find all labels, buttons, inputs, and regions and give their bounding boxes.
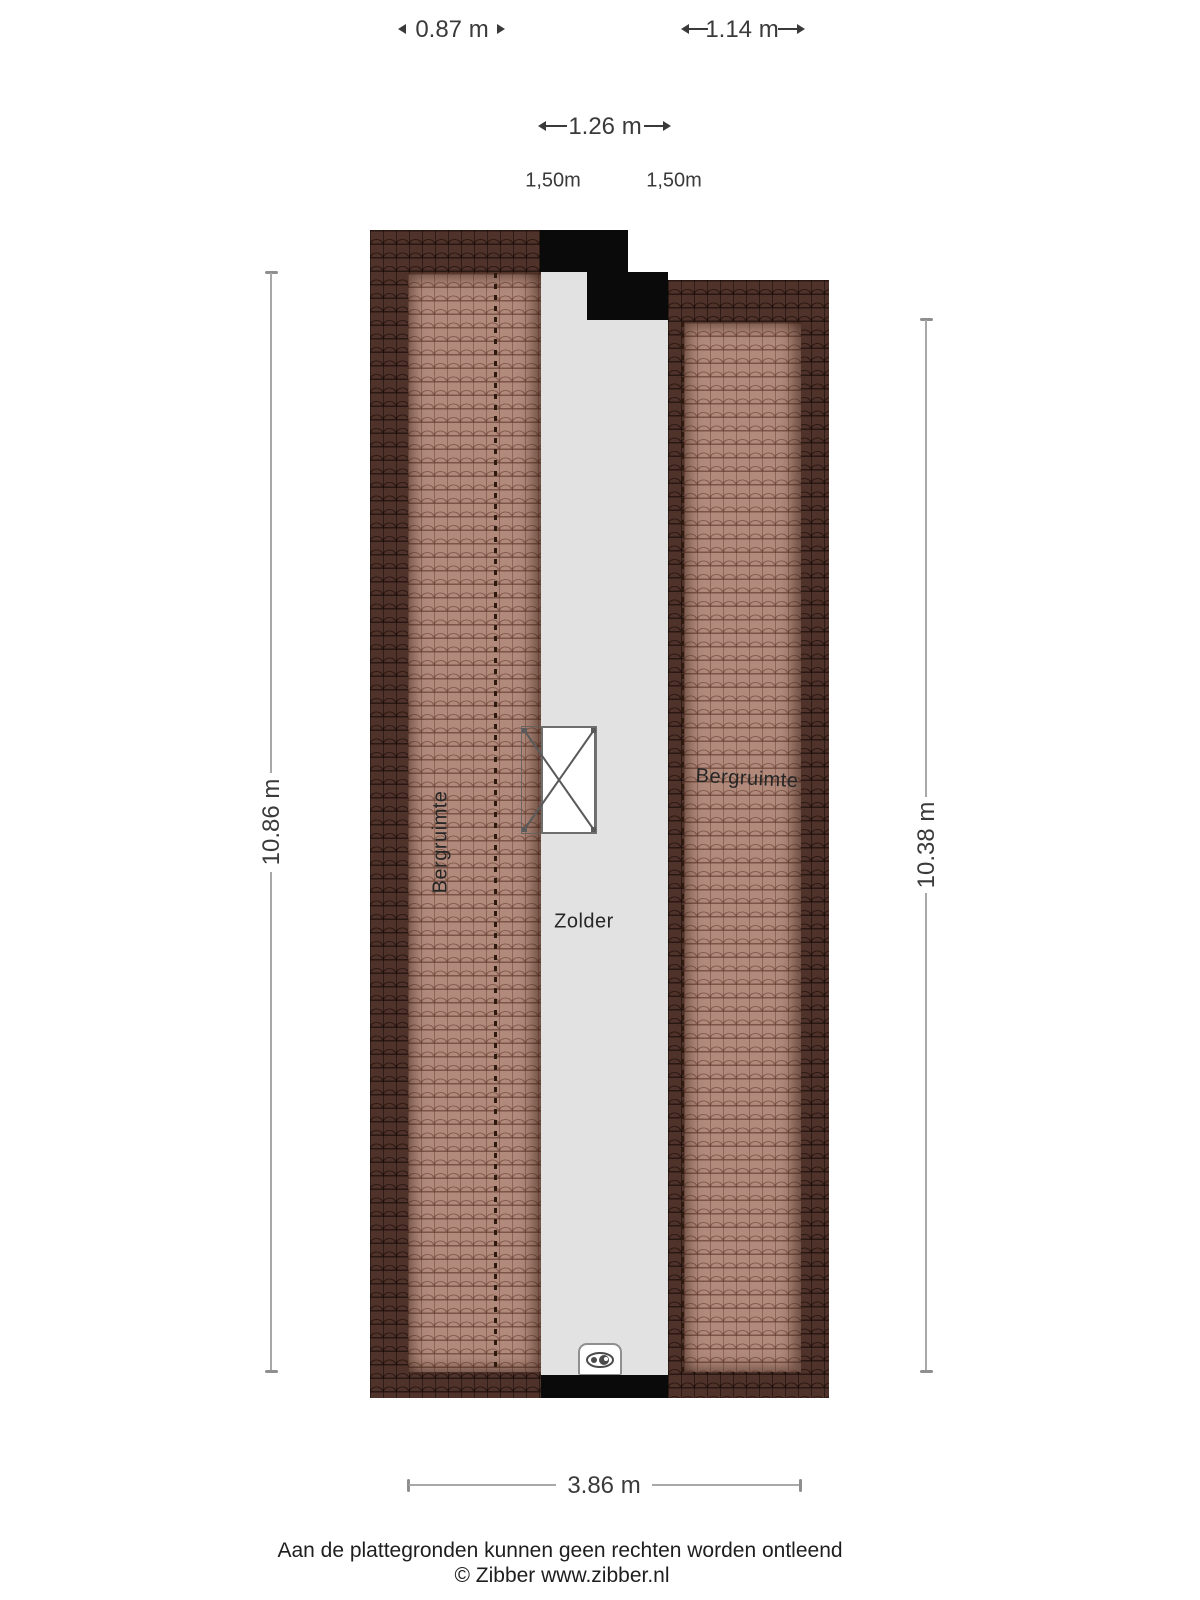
dim-left-segment-bottom: [270, 872, 272, 1372]
room-label-bergruimte-left: Bergruimte: [430, 791, 453, 894]
height-label-right: 1,50m: [646, 170, 702, 193]
ventilation-glyph: [584, 1351, 616, 1369]
dim-right-segment-bottom: [925, 893, 927, 1372]
dim-label-left: 10.86 m: [258, 779, 286, 866]
dim-label-126: 1.26 m: [568, 113, 641, 141]
height-contour-line-left: [494, 273, 497, 1372]
dim-bottom-cap-right: [799, 1479, 802, 1492]
dim-087-arrow-left-icon: [398, 24, 406, 34]
dim-label-right: 10.38 m: [913, 802, 941, 889]
roof-right-section: [668, 280, 829, 1398]
wall-block-top-upper: [540, 230, 628, 272]
stairs-opening-icon: [521, 726, 597, 834]
floorplan-canvas: Bergruimte Bergruimte Zolder 0.87 m 1.14…: [0, 0, 1200, 1600]
dim-right-cap-bottom: [920, 1370, 933, 1373]
dim-087-arrow-right-icon: [497, 24, 505, 34]
dim-126-shaft-left: [545, 125, 567, 127]
dim-126-arrow-right-icon: [663, 121, 671, 131]
footer-disclaimer: Aan de plattegronden kunnen geen rechten…: [277, 1539, 842, 1563]
ventilation-unit-icon: [578, 1343, 622, 1375]
height-label-left: 1,50m: [525, 170, 581, 193]
dim-114-arrow-right-icon: [797, 24, 805, 34]
stairs-opening-cross: [521, 726, 597, 834]
dim-left-segment-top: [270, 273, 272, 773]
dim-label-114: 1.14 m: [705, 16, 778, 44]
wall-block-bottom: [541, 1375, 668, 1398]
footer-credit: © Zibber www.zibber.nl: [454, 1564, 669, 1588]
room-label-zolder: Zolder: [554, 911, 614, 934]
wall-block-top-lower: [587, 272, 668, 320]
roof-right-inner-area: [684, 322, 801, 1372]
dim-bottom-segment-left: [409, 1484, 556, 1486]
dim-left-cap-bottom: [265, 1370, 278, 1373]
roof-left-section: [370, 230, 541, 1398]
dim-label-087: 0.87 m: [415, 16, 488, 44]
height-contour-line-right: [681, 322, 684, 1372]
dim-114-shaft-right: [778, 28, 798, 30]
dim-label-bottom: 3.86 m: [567, 1472, 640, 1500]
dim-bottom-segment-right: [652, 1484, 800, 1486]
dim-right-segment-top: [925, 320, 927, 797]
